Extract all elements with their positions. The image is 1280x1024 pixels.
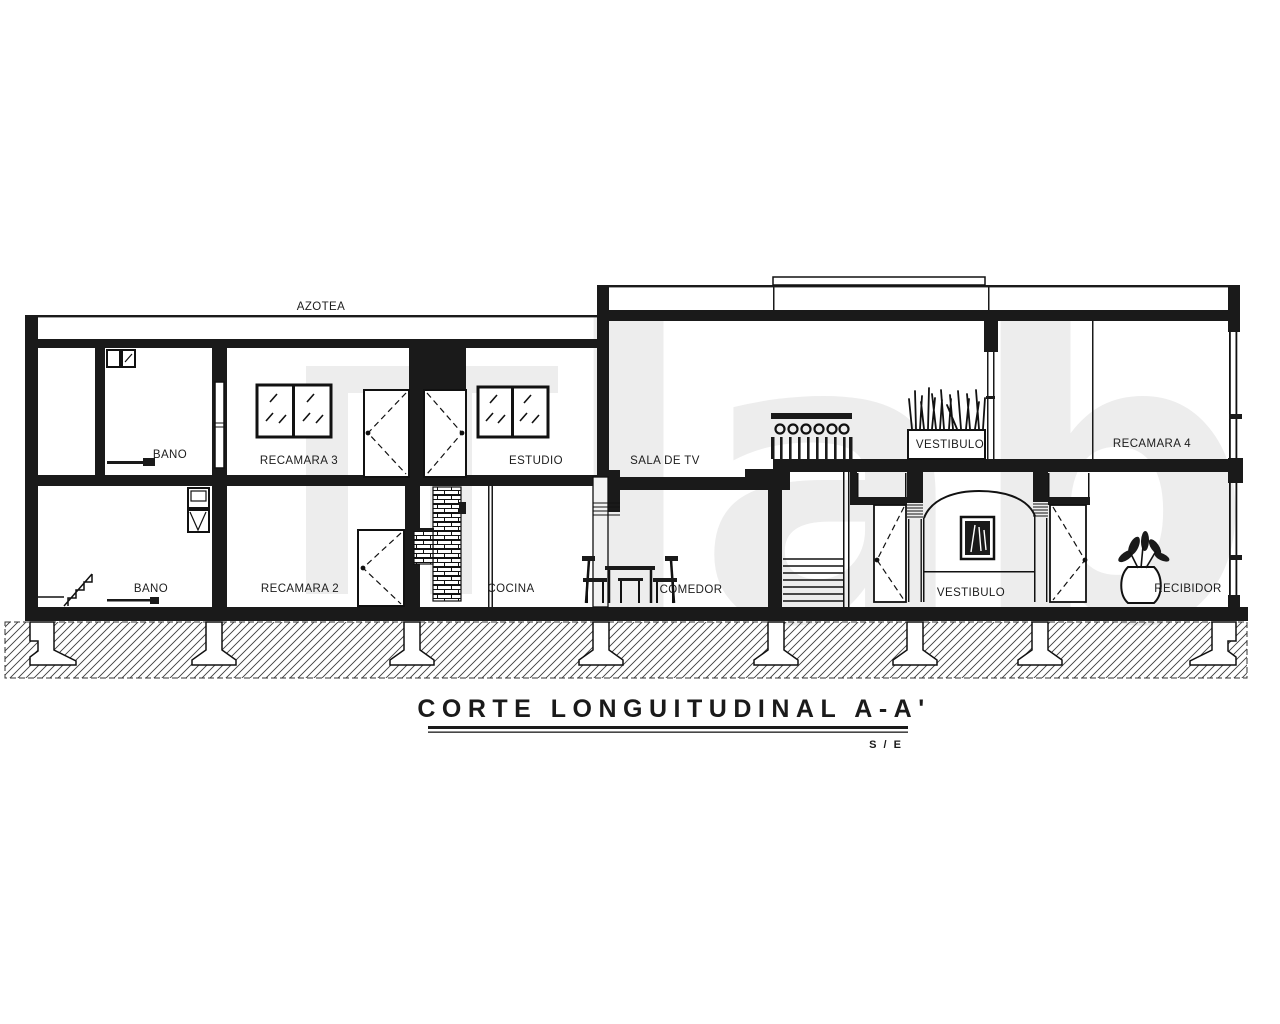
upper-bathroom-window (107, 350, 135, 367)
label-estudio: ESTUDIO (509, 455, 563, 467)
lower-bathroom-counter (107, 597, 159, 604)
label-bano-upper: BANO (153, 449, 187, 461)
label-recamara-4: RECAMARA 4 (1113, 438, 1191, 450)
upper-door-1 (364, 390, 409, 477)
upper-bathroom-counter (107, 458, 155, 466)
label-cocina: COCINA (487, 583, 534, 595)
architectural-section-sheet: lab (0, 0, 1280, 1024)
earth-hatch (5, 622, 1247, 678)
upper-door-2 (424, 390, 466, 477)
title-block: CORTE LONGUITUDINAL A-A' S / E (417, 695, 930, 751)
lower-bathroom-window (188, 488, 209, 532)
entry-stair-left (38, 574, 92, 606)
label-vestibulo-lower: VESTIBULO (937, 587, 1005, 599)
bedroom2-door (358, 530, 404, 606)
roof-parapet-strip (773, 277, 985, 285)
upper-bathroom-door-leaf (215, 382, 224, 468)
scale-note: S / E (869, 739, 903, 751)
study-window (478, 387, 548, 437)
label-recamara-3: RECAMARA 3 (260, 455, 338, 467)
ground-slab (25, 607, 1248, 621)
label-recibidor: RECIBIDOR (1154, 583, 1222, 595)
label-azotea: AZOTEA (297, 301, 345, 313)
drawing-title: CORTE LONGUITUDINAL A-A' (417, 695, 930, 723)
label-comedor: COMEDOR (660, 584, 723, 596)
framed-picture (961, 517, 994, 559)
bedroom3-window (257, 385, 331, 437)
label-vestibulo-upper: VESTIBULO (916, 439, 984, 451)
section-drawing: lab (0, 0, 1280, 1024)
label-recamara-2: RECAMARA 2 (261, 583, 339, 595)
label-sala-de-tv: SALA DE TV (630, 455, 700, 467)
label-bano-lower: BANO (134, 583, 168, 595)
